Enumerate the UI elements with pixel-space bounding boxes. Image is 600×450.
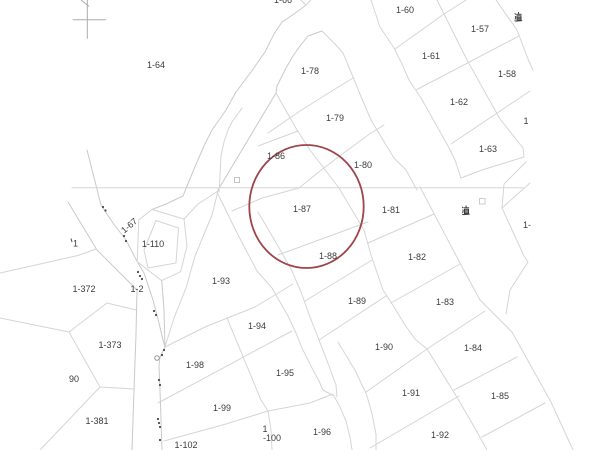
svg-text:1-102: 1-102: [174, 440, 197, 450]
svg-text:1-2: 1-2: [130, 284, 143, 294]
svg-text:1-66: 1-66: [274, 0, 292, 5]
svg-text:1-58: 1-58: [498, 69, 516, 79]
svg-text:1-96: 1-96: [313, 427, 331, 437]
svg-text:1: 1: [523, 116, 528, 126]
svg-text:1-85: 1-85: [491, 391, 509, 401]
svg-text:1-92: 1-92: [431, 430, 449, 440]
svg-text:1-57: 1-57: [471, 24, 489, 34]
svg-text:1-78: 1-78: [301, 66, 319, 76]
svg-text:1-372: 1-372: [72, 284, 95, 294]
svg-text:90: 90: [69, 374, 79, 384]
svg-text:1-82: 1-82: [408, 252, 426, 262]
svg-text:1-94: 1-94: [248, 321, 266, 331]
svg-text:1-98: 1-98: [186, 360, 204, 370]
svg-text:1-381: 1-381: [85, 416, 108, 426]
svg-text:1-79: 1-79: [326, 113, 344, 123]
svg-text:1: 1: [73, 239, 78, 249]
svg-text:1-91: 1-91: [402, 388, 420, 398]
svg-text:1-61: 1-61: [422, 51, 440, 61]
svg-text:1-80: 1-80: [354, 160, 372, 170]
svg-text:1-83: 1-83: [436, 297, 454, 307]
svg-text:1-63: 1-63: [479, 144, 497, 154]
svg-text:1-88: 1-88: [319, 251, 337, 261]
svg-text:1-81: 1-81: [382, 205, 400, 215]
svg-text:1-95: 1-95: [276, 368, 294, 378]
svg-text:-100: -100: [263, 433, 281, 443]
svg-text:1-60: 1-60: [396, 5, 414, 15]
svg-text:1-: 1-: [523, 220, 531, 230]
svg-text:1-90: 1-90: [375, 342, 393, 352]
svg-text:1-84: 1-84: [464, 343, 482, 353]
svg-text:1-93: 1-93: [212, 276, 230, 286]
svg-text:1-62: 1-62: [450, 97, 468, 107]
svg-text:1-87: 1-87: [293, 204, 311, 214]
svg-text:1-110: 1-110: [142, 239, 164, 249]
svg-text:1-373: 1-373: [98, 340, 121, 350]
svg-text:1-86: 1-86: [267, 151, 285, 161]
svg-text:1-64: 1-64: [147, 60, 165, 70]
svg-text:1-89: 1-89: [348, 296, 366, 306]
svg-text:1-99: 1-99: [213, 403, 231, 413]
